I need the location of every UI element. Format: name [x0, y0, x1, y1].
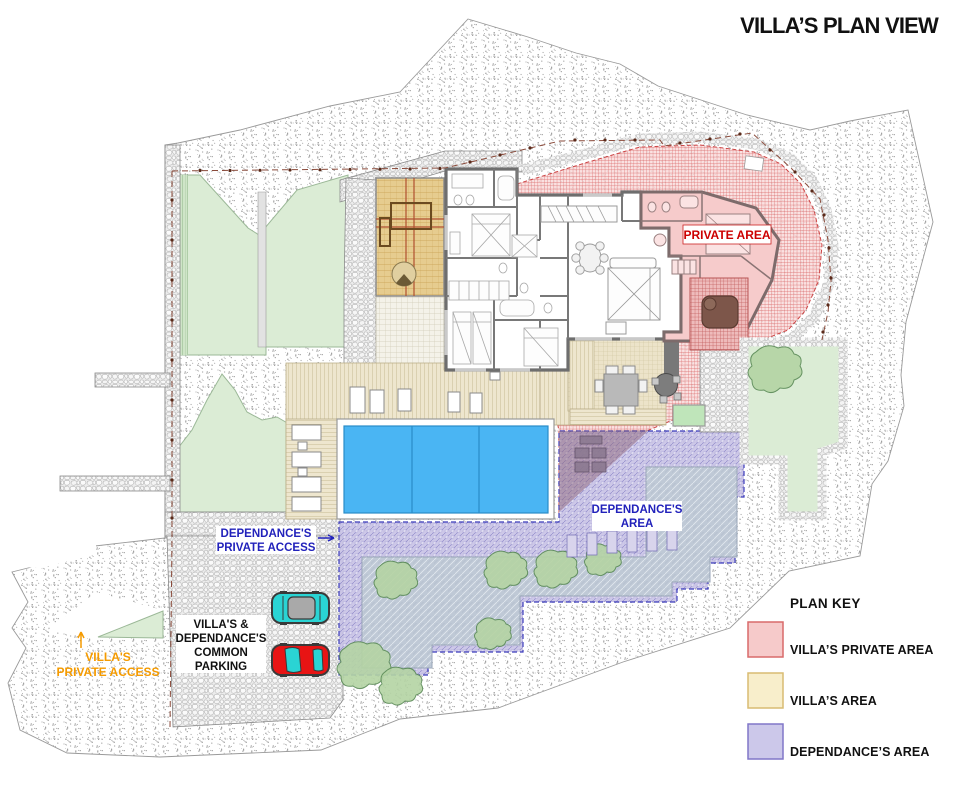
svg-text:DEPENDANCE’S AREA: DEPENDANCE’S AREA — [790, 745, 929, 759]
svg-text:DEPENDANCE'S: DEPENDANCE'S — [592, 504, 683, 516]
svg-text:VILLA'S: VILLA'S — [85, 650, 131, 664]
svg-text:AREA: AREA — [621, 518, 654, 530]
svg-text:PRIVATE ACCESS: PRIVATE ACCESS — [217, 542, 316, 554]
svg-text:COMMON: COMMON — [194, 647, 248, 659]
svg-text:PARKING: PARKING — [195, 661, 247, 673]
svg-text:DEPENDANCE'S: DEPENDANCE'S — [221, 528, 312, 540]
svg-text:PRIVATE AREA: PRIVATE AREA — [683, 228, 770, 242]
svg-text:DEPENDANCE'S: DEPENDANCE'S — [176, 633, 267, 645]
svg-text:VILLA'S &: VILLA'S & — [193, 619, 248, 631]
svg-text:PLAN KEY: PLAN KEY — [790, 596, 861, 611]
svg-text:PRIVATE ACCESS: PRIVATE ACCESS — [56, 665, 159, 679]
svg-text:VILLA’S PLAN VIEW: VILLA’S PLAN VIEW — [740, 13, 939, 38]
svg-text:VILLA’S PRIVATE AREA: VILLA’S PRIVATE AREA — [790, 643, 933, 657]
svg-text:VILLA’S AREA: VILLA’S AREA — [790, 694, 877, 708]
